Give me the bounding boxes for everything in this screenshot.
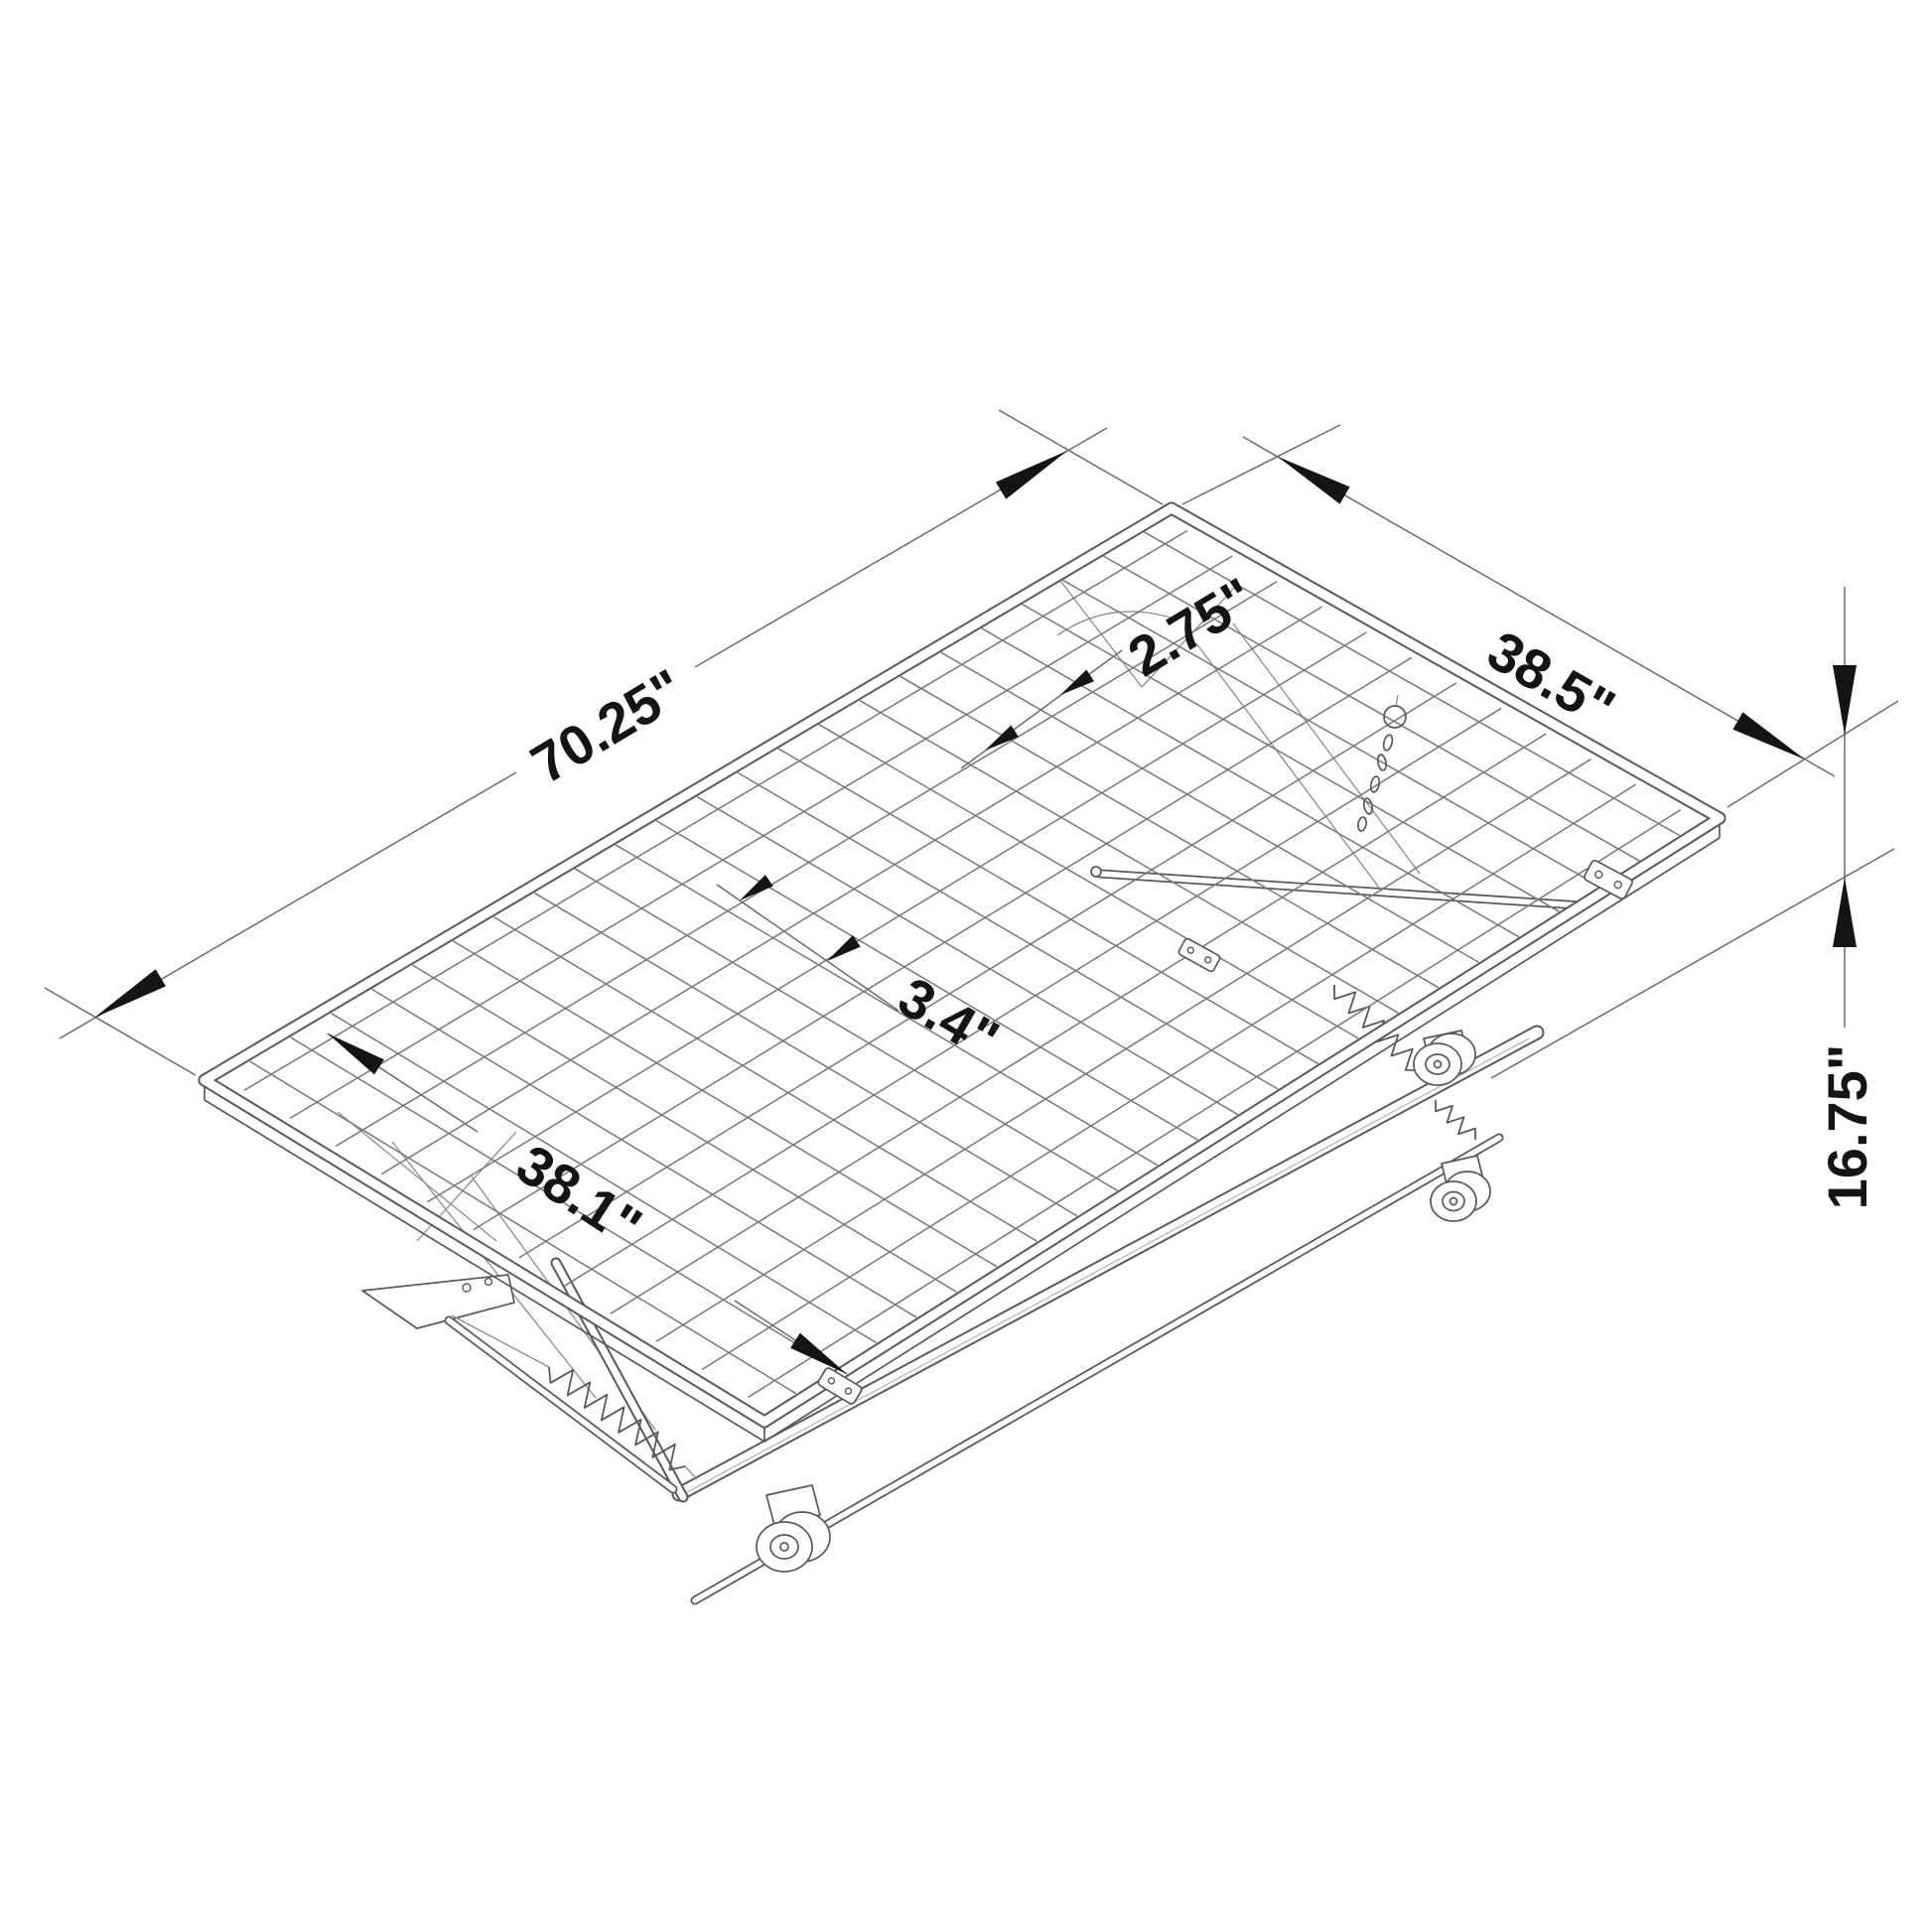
dimension-length-label: 70.25": [520, 656, 694, 795]
plate-hole: [485, 1279, 492, 1286]
leader-line: [961, 650, 1122, 768]
caster-hub: [1435, 1061, 1442, 1068]
bracket-plate: [1177, 937, 1221, 972]
mesh-cross-wire: [413, 965, 957, 1292]
dimension-arrowhead: [740, 875, 773, 900]
dimension-arrowhead: [1833, 665, 1857, 735]
chain-link: [1369, 775, 1380, 792]
caster-hub: [1450, 1198, 1457, 1205]
frame-tube-nw-face: [205, 508, 1172, 1080]
mesh-cross-wire: [250, 1061, 796, 1393]
frame-tube-sw-face: [205, 1080, 764, 1422]
extension-line: [1727, 701, 1898, 807]
dimension-arrowhead: [827, 935, 861, 961]
dimension-cross-spacing-label: 2.75": [1118, 565, 1266, 688]
bracket-middle: [1177, 937, 1221, 972]
base-rail-highlight: [687, 1038, 1529, 1492]
mesh-cross-wire: [372, 989, 917, 1317]
dimension-arrowhead: [1278, 457, 1350, 504]
dimension-arrowhead: [1060, 670, 1094, 695]
dimension-long-wire-spacing: 3.4": [717, 875, 1010, 1070]
support-bar-pivot: [1091, 867, 1101, 877]
dimension-arrowhead: [1833, 878, 1857, 947]
bed-frame-dimension-diagram: 70.25" 38.5" 16.75" 2.75" 3.4" 38.1": [0, 0, 1932, 1932]
dimension-arrowhead: [996, 451, 1067, 499]
dimension-cross-wire-spacing: 2.75": [961, 565, 1265, 768]
mesh-cross-wire: [982, 628, 1519, 937]
mesh-cross-wire: [575, 869, 1117, 1190]
mesh-long-wire: [290, 556, 1232, 1118]
support-bar-face: [1100, 874, 1581, 905]
chain-anchor: [1396, 695, 1398, 707]
mesh-cross-wire: [778, 749, 1318, 1063]
dimension-height-label: 16.75": [1816, 1044, 1878, 1210]
caster-far-right: [1431, 1156, 1490, 1221]
dimension-arrowhead: [1732, 712, 1805, 759]
mesh-cross-wire: [697, 796, 1238, 1114]
extension-line: [1491, 849, 1894, 1078]
extension-line: [1182, 425, 1340, 504]
dimension-width: 38.5": [1182, 425, 1898, 807]
plate-hole: [463, 1284, 471, 1292]
mesh-grid: [244, 531, 1681, 1398]
mesh-long-wire: [565, 708, 1501, 1286]
chain-link: [1357, 816, 1367, 831]
mesh-cross-wire: [900, 676, 1439, 987]
mesh-cross-wire: [738, 772, 1278, 1089]
chain-latch: [1357, 695, 1406, 832]
mesh-cross-wire: [941, 652, 1479, 962]
mesh-cross-wire: [860, 701, 1399, 1014]
caster-far-left: [757, 1485, 830, 1572]
frame-tube-se-face: [764, 818, 1720, 1422]
coil-spring: [1436, 1100, 1475, 1140]
mesh-long-wire: [244, 531, 1187, 1091]
base-rail-face: [679, 1033, 1537, 1494]
chain-link: [1382, 734, 1394, 751]
chain-link: [1362, 797, 1373, 814]
mesh-cross-wire: [1023, 605, 1560, 912]
dimension-long-spacing-label: 3.4": [889, 965, 1010, 1071]
caster-hub: [780, 1543, 788, 1551]
mesh-long-wire: [519, 683, 1456, 1258]
technical-drawing-page: 70.25" 38.5" 16.75" 2.75" 3.4" 38.1": [0, 0, 1932, 1932]
dimension-inner-width-label: 38.1": [506, 1132, 653, 1258]
dimension-arrowhead: [790, 1333, 847, 1374]
extension-line: [999, 410, 1163, 504]
mesh-cross-wire: [534, 893, 1077, 1215]
spring-hook: [685, 1466, 697, 1479]
mesh-cross-wire: [616, 845, 1158, 1166]
dimension-arrowhead: [94, 969, 166, 1018]
